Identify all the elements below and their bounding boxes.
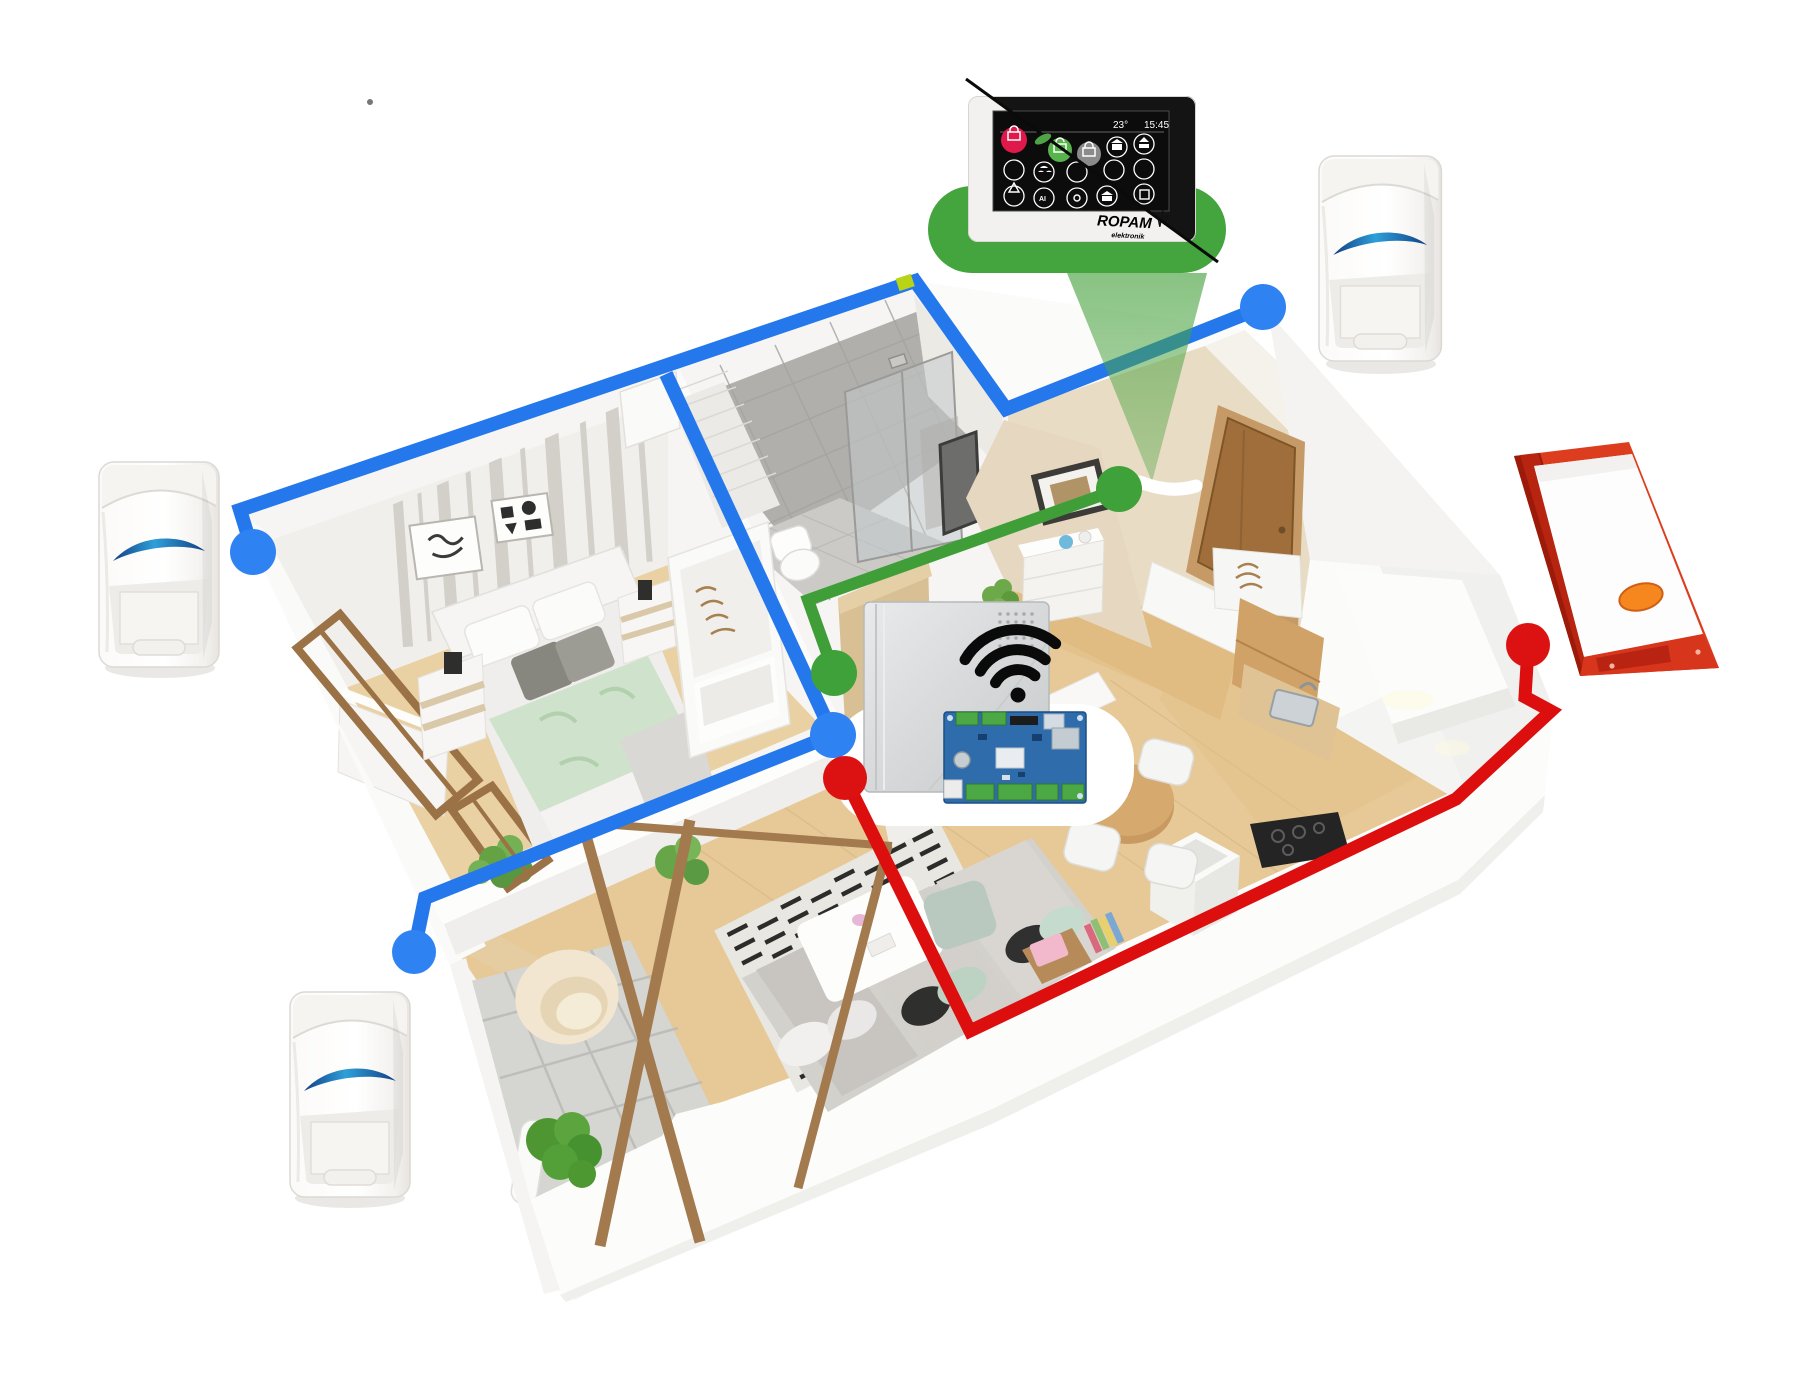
svg-text:15:45: 15:45 — [1144, 120, 1169, 131]
svg-text:ROPAM: ROPAM — [1097, 212, 1153, 232]
svg-text:AI: AI — [1039, 196, 1046, 203]
svg-text:23°: 23° — [1113, 120, 1128, 131]
